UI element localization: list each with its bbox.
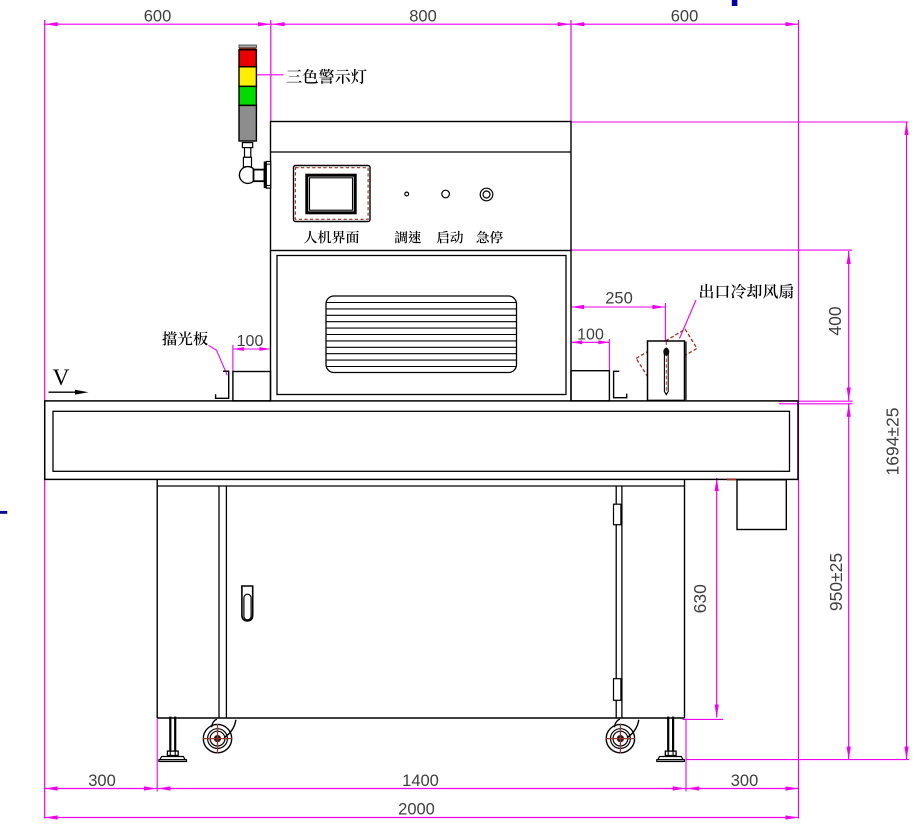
svg-text:950±25: 950±25 — [826, 553, 846, 611]
svg-text:100: 100 — [237, 333, 264, 350]
svg-text:600: 600 — [144, 8, 172, 26]
svg-text:300: 300 — [88, 772, 116, 790]
svg-text:V: V — [53, 365, 70, 391]
svg-text:100: 100 — [577, 327, 604, 344]
svg-text:600: 600 — [671, 8, 699, 26]
svg-text:2000: 2000 — [398, 801, 435, 819]
svg-text:400: 400 — [825, 306, 845, 335]
svg-text:1400: 1400 — [402, 772, 439, 790]
svg-text:800: 800 — [409, 8, 437, 26]
svg-text:630: 630 — [690, 584, 710, 613]
svg-text:250: 250 — [605, 290, 633, 308]
svg-text:1694±25: 1694±25 — [883, 407, 903, 475]
svg-text:300: 300 — [731, 772, 759, 790]
